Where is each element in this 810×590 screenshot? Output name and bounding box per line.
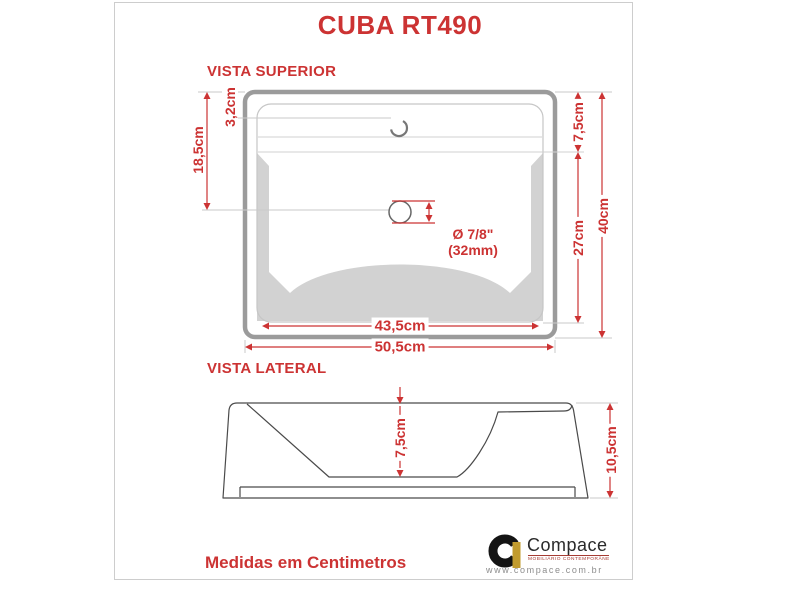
logo-website: www.compace.com.br xyxy=(486,566,603,575)
logo-c-mark xyxy=(493,539,515,563)
logo-brand-name: Compace xyxy=(527,536,608,554)
dim-label-43-5cm: 43,5cm xyxy=(372,318,429,335)
drain-diameter-inches: Ø 7/8" xyxy=(448,226,498,242)
logo-tagline: MOBILIÁRIO CONTEMPORÂNEO xyxy=(528,555,609,563)
top-view-label: VISTA SUPERIOR xyxy=(207,64,336,79)
dim-label-18-5cm: 18,5cm xyxy=(191,126,205,173)
page-title: CUBA RT490 xyxy=(318,12,482,38)
dim-label-10-5cm: 10,5cm xyxy=(603,423,619,476)
dim-label-7-5cm-deck: 7,5cm xyxy=(570,99,586,145)
dim-label-50-5cm: 50,5cm xyxy=(372,339,429,356)
diagram-page: CUBA RT490 VISTA SUPERIOR VISTA LATERAL … xyxy=(0,0,810,590)
dim-label-3-2cm: 3,2cm xyxy=(222,84,238,130)
compace-logo-icon xyxy=(493,539,521,568)
units-note: Medidas em Centimetros xyxy=(205,554,406,571)
drain-diameter-mm: (32mm) xyxy=(448,242,498,258)
drain-hole-icon xyxy=(389,201,411,223)
side-view-label: VISTA LATERAL xyxy=(207,361,326,376)
dim-label-40cm: 40cm xyxy=(595,195,611,237)
side-view-drawing xyxy=(223,387,618,498)
dim-label-7-5cm-side: 7,5cm xyxy=(392,415,408,461)
top-view-drawing xyxy=(198,92,612,353)
dim-label-27cm: 27cm xyxy=(570,217,586,259)
drain-diameter-label: Ø 7/8" (32mm) xyxy=(448,226,498,258)
diagram-linework xyxy=(0,0,810,590)
